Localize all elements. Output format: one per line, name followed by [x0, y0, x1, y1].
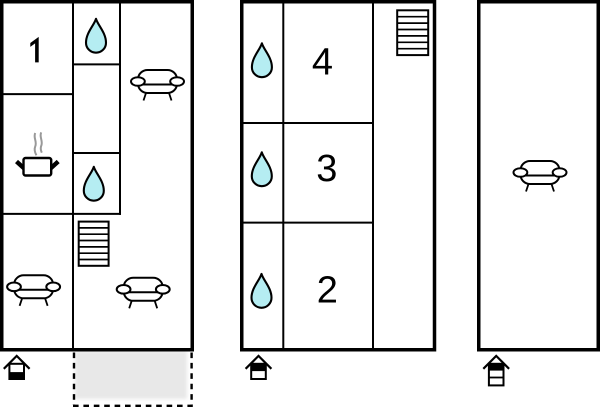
svg-text:4: 4: [312, 42, 333, 84]
svg-text:2: 2: [317, 270, 338, 312]
svg-text:3: 3: [316, 148, 337, 190]
